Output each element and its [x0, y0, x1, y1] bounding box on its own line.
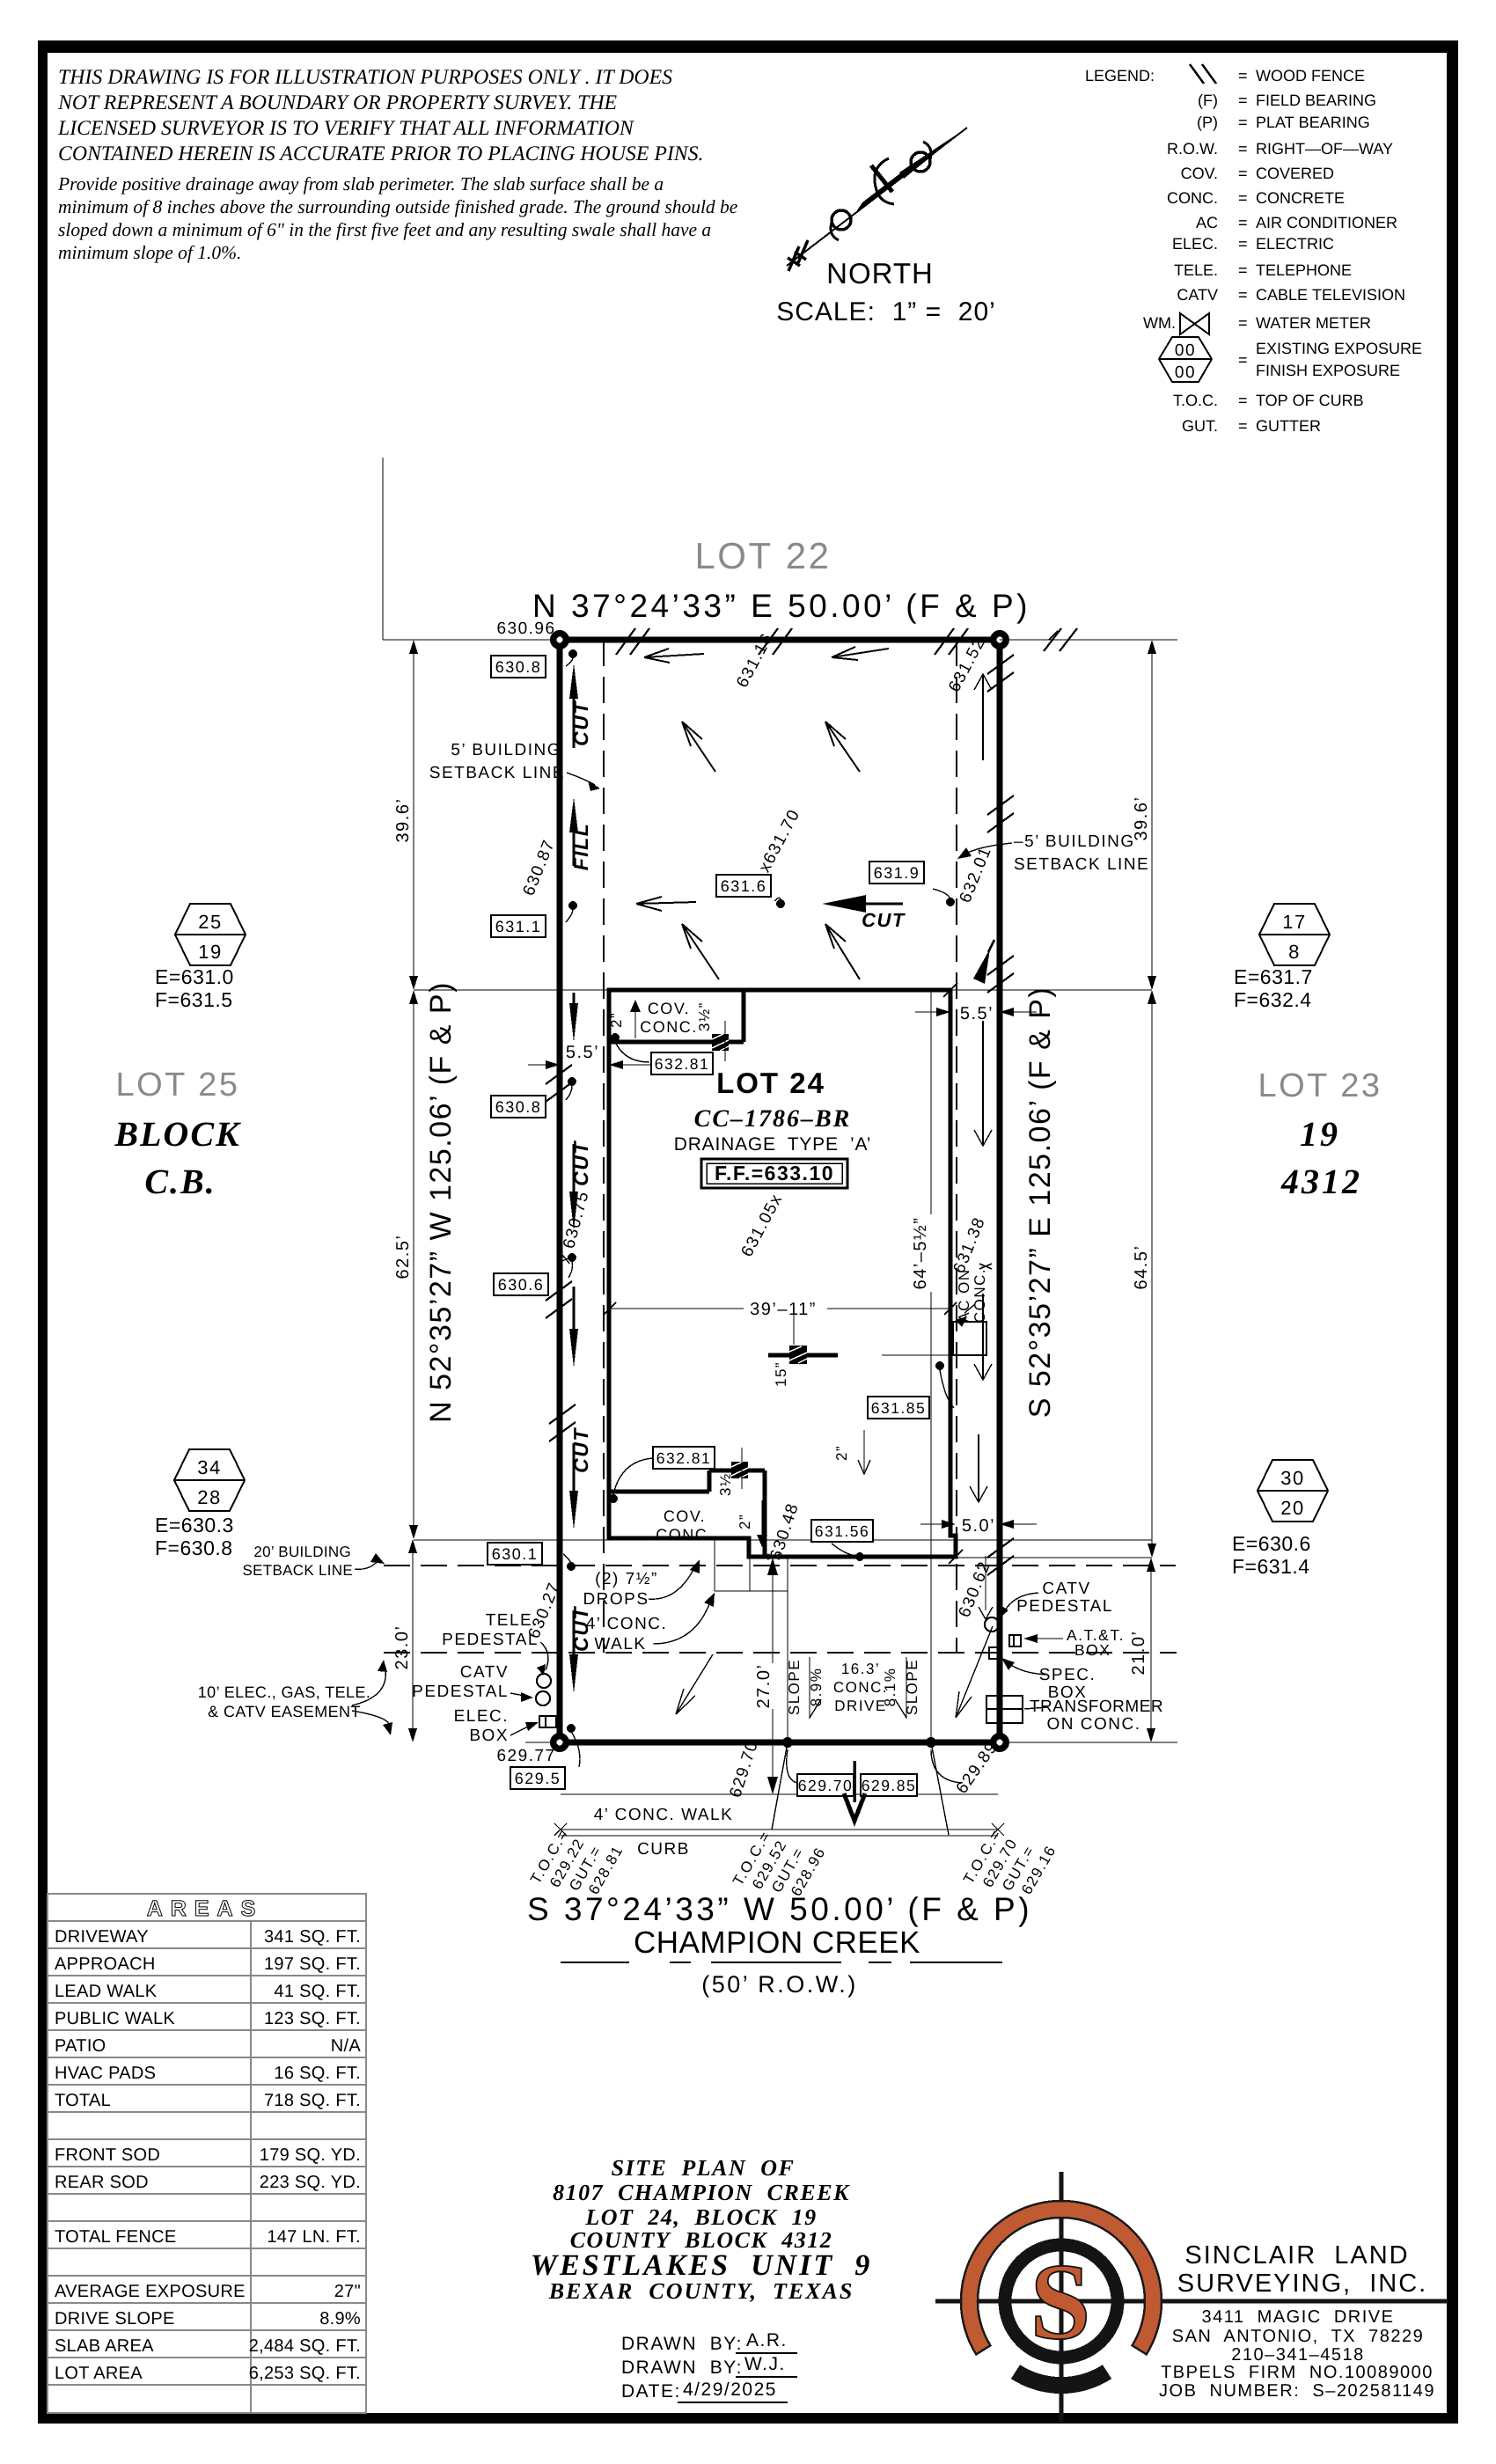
svg-text:39’–11”: 39’–11”: [750, 1300, 817, 1319]
svg-text:630.8: 630.8: [495, 1098, 542, 1116]
svg-text:JOB NUMBER: S–202581149: JOB NUMBER: S–202581149: [1159, 2381, 1435, 2401]
svg-text:630.6: 630.6: [498, 1276, 545, 1294]
svg-text:23.0’: 23.0’: [392, 1625, 412, 1670]
svg-text:PEDESTAL: PEDESTAL: [412, 1683, 509, 1701]
svg-text:15”: 15”: [773, 1361, 789, 1387]
svg-text:=: =: [1238, 67, 1248, 84]
svg-text:minimum slope of 1.0%.: minimum slope of 1.0%.: [58, 242, 241, 263]
svg-text:LICENSED SURVEYOR IS TO VERIFY: LICENSED SURVEYOR IS TO VERIFY THAT ALL …: [57, 117, 634, 140]
svg-text:=: =: [1238, 114, 1248, 131]
svg-text:E=631.0: E=631.0: [155, 965, 234, 988]
svg-text:16.3’: 16.3’: [841, 1661, 880, 1677]
svg-text:DATE:: DATE:: [621, 2381, 681, 2402]
svg-text:223 SQ. YD.: 223 SQ. YD.: [260, 2173, 361, 2192]
svg-text:ON CONC.: ON CONC.: [1047, 1715, 1141, 1734]
svg-text:LOT 24, BLOCK 19: LOT 24, BLOCK 19: [584, 2204, 817, 2230]
svg-text:8.9%: 8.9%: [319, 2309, 361, 2328]
svg-text:AVERAGE EXPOSURE: AVERAGE EXPOSURE: [55, 2282, 246, 2301]
svg-text:(F): (F): [1198, 92, 1218, 109]
svg-text:TOP OF CURB: TOP OF CURB: [1256, 392, 1364, 409]
svg-text:E=630.3: E=630.3: [155, 1514, 234, 1536]
svg-text:CONC.: CONC.: [972, 1268, 988, 1323]
svg-text:BLOCK: BLOCK: [114, 1114, 241, 1154]
svg-text:SLOPE: SLOPE: [786, 1659, 803, 1715]
svg-text:=: =: [1238, 165, 1248, 182]
svg-text:20: 20: [1280, 1497, 1304, 1519]
svg-text:123 SQ. FT.: 123 SQ. FT.: [264, 2009, 361, 2028]
svg-text:FILL: FILL: [569, 823, 592, 871]
svg-text:S: S: [1030, 2241, 1091, 2362]
svg-text:19: 19: [1300, 1114, 1340, 1154]
svg-text:CONC.: CONC.: [640, 1018, 698, 1036]
svg-text:3411 MAGIC DRIVE: 3411 MAGIC DRIVE: [1202, 2307, 1395, 2327]
svg-text:ELEC.: ELEC.: [1172, 235, 1218, 253]
svg-text:27": 27": [334, 2282, 361, 2301]
svg-text:PUBLIC WALK: PUBLIC WALK: [55, 2009, 175, 2028]
svg-text:631.1: 631.1: [495, 918, 542, 935]
svg-text:FINISH EXPOSURE: FINISH EXPOSURE: [1256, 362, 1400, 379]
svg-text:=: =: [1238, 214, 1248, 231]
svg-text:30: 30: [1280, 1467, 1304, 1489]
svg-text:629.5: 629.5: [515, 1770, 561, 1787]
svg-text:F=631.4: F=631.4: [1232, 1555, 1310, 1578]
svg-text:minimum of 8 inches above the: minimum of 8 inches above the surroundin…: [58, 196, 738, 217]
svg-text:LEGEND:: LEGEND:: [1085, 67, 1155, 84]
svg-text:SCALE: 1” = 20’: SCALE: 1” = 20’: [776, 297, 996, 326]
svg-text:5.0’: 5.0’: [962, 1516, 995, 1536]
svg-text:CURB: CURB: [637, 1840, 690, 1859]
svg-text:TBPELS FIRM NO.10089000: TBPELS FIRM NO.10089000: [1161, 2363, 1434, 2382]
svg-text:ELEC.: ELEC.: [454, 1707, 509, 1726]
svg-text:DRAWN BY:: DRAWN BY:: [621, 2334, 743, 2354]
svg-text:HVAC PADS: HVAC PADS: [55, 2064, 156, 2083]
svg-text:APPROACH: APPROACH: [55, 1954, 156, 1974]
svg-text:CABLE TELEVISION: CABLE TELEVISION: [1256, 286, 1405, 304]
svg-text:DRAWN BY:: DRAWN BY:: [621, 2358, 743, 2378]
svg-text:00: 00: [1175, 341, 1196, 360]
svg-text:632.81: 632.81: [656, 1449, 712, 1467]
svg-text:TELE.: TELE.: [1174, 261, 1218, 279]
svg-text:DROPS: DROPS: [583, 1590, 649, 1609]
svg-text:=: =: [1238, 140, 1248, 158]
svg-text:REAR SOD: REAR SOD: [55, 2173, 149, 2192]
svg-text:DRIVEWAY: DRIVEWAY: [55, 1927, 149, 1947]
svg-text:4’ CONC. WALK: 4’ CONC. WALK: [594, 1806, 734, 1824]
svg-text:2”: 2”: [737, 1514, 753, 1529]
svg-text:630.8: 630.8: [495, 658, 542, 676]
svg-text:NOT REPRESENT A BOUNDARY OR PR: NOT REPRESENT A BOUNDARY OR PROPERTY SUR…: [57, 92, 618, 114]
svg-text:00: 00: [1175, 363, 1196, 382]
svg-text:17: 17: [1282, 911, 1306, 933]
svg-text:COVERED: COVERED: [1256, 165, 1334, 182]
svg-text:CONC.: CONC.: [833, 1679, 888, 1696]
svg-text:CHAMPION CREEK: CHAMPION CREEK: [634, 1925, 920, 1960]
svg-text:BOX: BOX: [469, 1727, 509, 1745]
svg-text:=: =: [1238, 392, 1248, 409]
svg-text:LOT 25: LOT 25: [115, 1067, 239, 1104]
svg-text:AC ON: AC ON: [956, 1268, 972, 1322]
svg-text:CONCRETE: CONCRETE: [1256, 189, 1345, 207]
svg-text:(50’ R.O.W.): (50’ R.O.W.): [701, 1971, 858, 1998]
svg-text:62.5’: 62.5’: [393, 1235, 413, 1280]
svg-text:8107 CHAMPION CREEK: 8107 CHAMPION CREEK: [553, 2180, 850, 2205]
svg-text:28: 28: [197, 1486, 221, 1508]
svg-text:F=630.8: F=630.8: [155, 1536, 233, 1559]
svg-text:A.R.: A.R.: [746, 2330, 788, 2350]
svg-text:S 52°35’27” E 125.06’ (F & P): S 52°35’27” E 125.06’ (F & P): [1023, 986, 1057, 1419]
svg-text:631.85: 631.85: [871, 1399, 927, 1417]
svg-text:=: =: [1238, 351, 1248, 369]
svg-text:=: =: [1238, 314, 1248, 332]
svg-text:GUTTER: GUTTER: [1256, 417, 1321, 435]
svg-text:8.9%: 8.9%: [808, 1668, 825, 1707]
svg-text:SLAB AREA: SLAB AREA: [55, 2336, 154, 2356]
svg-text:LEAD WALK: LEAD WALK: [55, 1982, 158, 2001]
svg-text:F=631.5: F=631.5: [155, 988, 233, 1011]
svg-text:5.5’: 5.5’: [566, 1043, 599, 1062]
svg-text:629.85: 629.85: [862, 1777, 917, 1794]
svg-text:SINCLAIR LAND: SINCLAIR LAND: [1184, 2241, 1409, 2270]
svg-text:sloped down a minimum of 6" in: sloped down a minimum of 6" in the first…: [58, 219, 711, 240]
svg-text:10’ ELEC., GAS, TELE.: 10’ ELEC., GAS, TELE.: [198, 1683, 371, 1701]
svg-text:=: =: [1238, 286, 1248, 304]
svg-text:197 SQ. FT.: 197 SQ. FT.: [264, 1954, 361, 1974]
svg-text:FRONT SOD: FRONT SOD: [55, 2145, 160, 2165]
svg-text:CATV: CATV: [1042, 1580, 1090, 1598]
svg-text:2”: 2”: [833, 1445, 850, 1461]
svg-text:BOX: BOX: [1074, 1641, 1111, 1659]
svg-text:SURVEYING, INC.: SURVEYING, INC.: [1177, 2270, 1427, 2298]
svg-text:N/A: N/A: [331, 2036, 362, 2056]
svg-text:632.81: 632.81: [655, 1055, 710, 1073]
svg-text:–5’ BUILDING: –5’ BUILDING: [1014, 832, 1135, 851]
svg-text:AREAS: AREAS: [147, 1896, 264, 1921]
svg-text:WATER METER: WATER METER: [1256, 314, 1371, 332]
svg-text:CONTAINED HEREIN IS ACCURATE P: CONTAINED HEREIN IS ACCURATE PRIOR TO PL…: [58, 143, 704, 165]
svg-text:8: 8: [1288, 941, 1301, 963]
svg-text:631.56: 631.56: [815, 1522, 870, 1540]
svg-text:WESTLAKES UNIT 9: WESTLAKES UNIT 9: [531, 2249, 872, 2282]
svg-text:41 SQ. FT.: 41 SQ. FT.: [274, 1982, 361, 2001]
svg-text:4’ CONC.: 4’ CONC.: [586, 1615, 668, 1633]
svg-text:210–341–4518: 210–341–4518: [1231, 2345, 1364, 2365]
svg-text:3½”: 3½”: [717, 1466, 734, 1496]
svg-text:DRAINAGE TYPE ’A’: DRAINAGE TYPE ’A’: [674, 1134, 871, 1155]
svg-text:=: =: [1238, 417, 1248, 435]
svg-text:64’–5½”: 64’–5½”: [911, 1217, 930, 1290]
svg-text:F.F.=633.10: F.F.=633.10: [715, 1162, 834, 1184]
svg-text:BEXAR COUNTY, TEXAS: BEXAR COUNTY, TEXAS: [548, 2278, 854, 2304]
svg-text:S 37°24’33” W 50.00’ (F & P): S 37°24’33” W 50.00’ (F & P): [527, 1891, 1032, 1927]
svg-text:E=631.7: E=631.7: [1234, 965, 1313, 988]
svg-text:(P): (P): [1197, 114, 1218, 131]
svg-text:19: 19: [198, 941, 222, 963]
svg-text:AIR CONDITIONER: AIR CONDITIONER: [1256, 214, 1397, 231]
svg-text:629.70: 629.70: [798, 1777, 854, 1794]
svg-text:DRIVE: DRIVE: [834, 1698, 886, 1714]
svg-text:6,253 SQ. FT.: 6,253 SQ. FT.: [249, 2364, 361, 2383]
svg-text:34: 34: [197, 1456, 221, 1478]
svg-text:20’ BUILDING: 20’ BUILDING: [253, 1544, 351, 1560]
svg-text:DRIVE SLOPE: DRIVE SLOPE: [55, 2309, 175, 2328]
svg-text:SETBACK LINE: SETBACK LINE: [429, 764, 565, 782]
svg-text:630.1: 630.1: [492, 1545, 539, 1563]
svg-text:N 52°35’27” W 125.06’ (F & P): N 52°35’27” W 125.06’ (F & P): [424, 981, 458, 1423]
svg-text:NORTH: NORTH: [826, 257, 934, 290]
svg-text:5’ BUILDING: 5’ BUILDING: [451, 741, 561, 759]
svg-text:FIELD BEARING: FIELD BEARING: [1256, 92, 1376, 109]
svg-text:SETBACK LINE: SETBACK LINE: [1014, 855, 1149, 874]
svg-text:CONC.: CONC.: [1167, 189, 1218, 207]
svg-text:PATIO: PATIO: [55, 2036, 106, 2056]
svg-text:5.5’: 5.5’: [960, 1004, 994, 1023]
svg-text:PEDESTAL: PEDESTAL: [442, 1631, 539, 1649]
svg-text:AC: AC: [1196, 214, 1218, 231]
svg-text:ELECTRIC: ELECTRIC: [1256, 235, 1334, 253]
svg-text:LOT 24: LOT 24: [716, 1067, 825, 1099]
svg-text:CATV: CATV: [460, 1663, 509, 1682]
svg-text:GUT.: GUT.: [1182, 417, 1218, 435]
svg-text:CUT: CUT: [569, 700, 592, 746]
svg-text:=: =: [1238, 92, 1248, 109]
svg-text:TRANSFORMER: TRANSFORMER: [1030, 1698, 1163, 1716]
svg-text:COV.: COV.: [648, 1000, 690, 1017]
svg-text:Provide positive drainage away: Provide positive drainage away from slab…: [57, 173, 664, 194]
svg-text:629.77: 629.77: [496, 1747, 555, 1765]
svg-text:CC–1786–BR: CC–1786–BR: [694, 1105, 852, 1133]
svg-text:SAN ANTONIO, TX 78229: SAN ANTONIO, TX 78229: [1172, 2327, 1424, 2346]
svg-text:630.96: 630.96: [496, 620, 555, 638]
svg-text:E=630.6: E=630.6: [1232, 1532, 1311, 1555]
svg-text:C.B.: C.B.: [144, 1162, 216, 1201]
svg-text:=: =: [1238, 235, 1248, 253]
svg-text:W.J.: W.J.: [744, 2354, 786, 2374]
svg-text:=: =: [1238, 261, 1248, 279]
svg-text:2”: 2”: [608, 1012, 625, 1028]
svg-text:4312: 4312: [1280, 1162, 1362, 1201]
svg-text:RIGHT—OF—WAY: RIGHT—OF—WAY: [1256, 140, 1393, 158]
svg-text:631.6: 631.6: [721, 877, 767, 895]
svg-text:F=632.4: F=632.4: [1234, 988, 1312, 1011]
svg-text:SITE PLAN OF: SITE PLAN OF: [612, 2155, 796, 2181]
svg-text:TELEPHONE: TELEPHONE: [1256, 261, 1352, 279]
svg-text:PLAT BEARING: PLAT BEARING: [1256, 114, 1370, 131]
svg-text:T.O.C.: T.O.C.: [1173, 392, 1218, 409]
svg-text:718 SQ. FT.: 718 SQ. FT.: [264, 2091, 361, 2110]
svg-text:WOOD FENCE: WOOD FENCE: [1256, 67, 1365, 84]
svg-text:WALK: WALK: [594, 1635, 646, 1654]
svg-text:4/29/2025: 4/29/2025: [683, 2380, 777, 2400]
svg-text:LOT 22: LOT 22: [694, 535, 831, 576]
svg-text:3½”: 3½”: [696, 1001, 713, 1031]
svg-text:PEDESTAL: PEDESTAL: [1016, 1597, 1113, 1616]
svg-text:16 SQ. FT.: 16 SQ. FT.: [274, 2064, 361, 2083]
svg-text:64.5’: 64.5’: [1132, 1245, 1151, 1290]
svg-text:TOTAL: TOTAL: [55, 2091, 111, 2110]
svg-text:27.0’: 27.0’: [754, 1664, 774, 1709]
svg-text:WM.: WM.: [1143, 314, 1176, 332]
svg-text:CONC.: CONC.: [656, 1526, 714, 1544]
svg-text:TOTAL FENCE: TOTAL FENCE: [55, 2227, 177, 2247]
svg-text:631.9: 631.9: [874, 864, 920, 882]
svg-text:SETBACK LINE: SETBACK LINE: [243, 1562, 353, 1579]
svg-text:341 SQ. FT.: 341 SQ. FT.: [264, 1927, 361, 1947]
svg-text:THIS DRAWING IS FOR ILLUSTRATI: THIS DRAWING IS FOR ILLUSTRATION PURPOSE…: [58, 66, 672, 89]
svg-text:COV.: COV.: [664, 1507, 706, 1525]
svg-text:& CATV EASEMENT: & CATV EASEMENT: [208, 1703, 361, 1720]
svg-text:(2) 7½”: (2) 7½”: [595, 1570, 658, 1588]
svg-text:TELE.: TELE.: [486, 1611, 539, 1630]
svg-text:CATV: CATV: [1177, 286, 1218, 304]
svg-text:2,484 SQ. FT.: 2,484 SQ. FT.: [249, 2336, 361, 2356]
svg-text:EXISTING EXPOSURE: EXISTING EXPOSURE: [1256, 340, 1422, 357]
svg-text:R.O.W.: R.O.W.: [1167, 140, 1218, 158]
svg-text:N 37°24’33” E 50.00’ (F & P): N 37°24’33” E 50.00’ (F & P): [532, 588, 1030, 624]
svg-text:COV.: COV.: [1181, 165, 1218, 182]
svg-text:LOT 23: LOT 23: [1258, 1067, 1382, 1104]
svg-text:25: 25: [198, 911, 222, 933]
svg-text:LOT AREA: LOT AREA: [55, 2364, 143, 2383]
svg-text:147 LN. FT.: 147 LN. FT.: [267, 2227, 361, 2247]
svg-text:39.6’: 39.6’: [393, 798, 413, 843]
svg-text:179 SQ. YD.: 179 SQ. YD.: [260, 2145, 361, 2165]
svg-text:CUT: CUT: [862, 909, 906, 931]
svg-text:=: =: [1238, 189, 1248, 207]
